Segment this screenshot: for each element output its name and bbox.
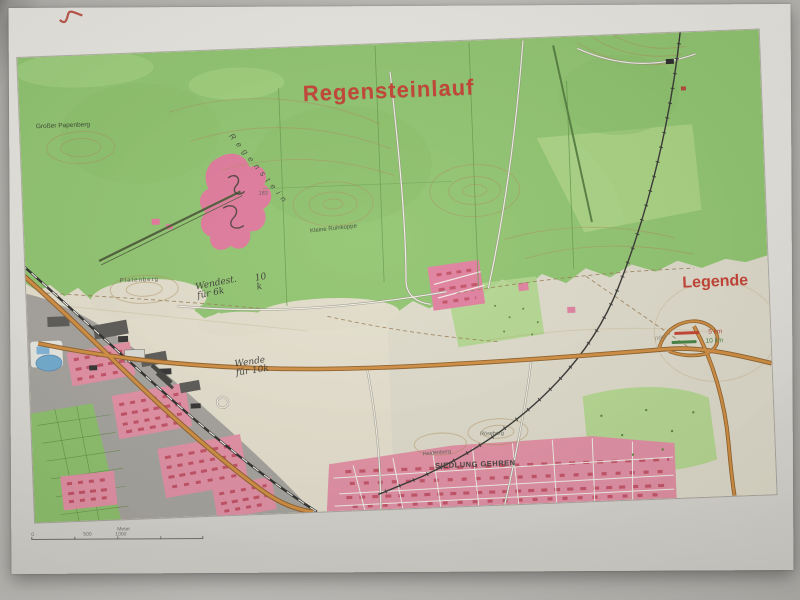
scale-mid: 500 <box>83 532 91 538</box>
legend-title: Legende <box>682 272 748 293</box>
scale-line <box>31 538 203 540</box>
map-print-area: Regensteinlauf Legende 5 km 10 km neu Gr… <box>17 29 776 522</box>
legend-line-green-icon <box>672 340 697 344</box>
red-checkmark-icon <box>56 7 88 28</box>
legend-item-10km: 10 km <box>674 336 723 347</box>
paper-sheet: Regensteinlauf Legende 5 km 10 km neu Gr… <box>9 4 794 574</box>
label-roeseberg: Röseberg <box>480 431 504 438</box>
scale-bar: Meter 0 500 1000 <box>31 527 203 542</box>
legend-line-red-icon <box>674 331 699 335</box>
label-elevation: 183 <box>259 190 268 196</box>
map-photo: Regensteinlauf Legende 5 km 10 km neu Gr… <box>0 0 800 600</box>
legend-item-label: 5 km <box>708 328 722 336</box>
legend-items: 5 km 10 km <box>674 327 723 347</box>
map-artwork <box>17 29 776 522</box>
legend-item-label: 10 km <box>705 337 723 345</box>
